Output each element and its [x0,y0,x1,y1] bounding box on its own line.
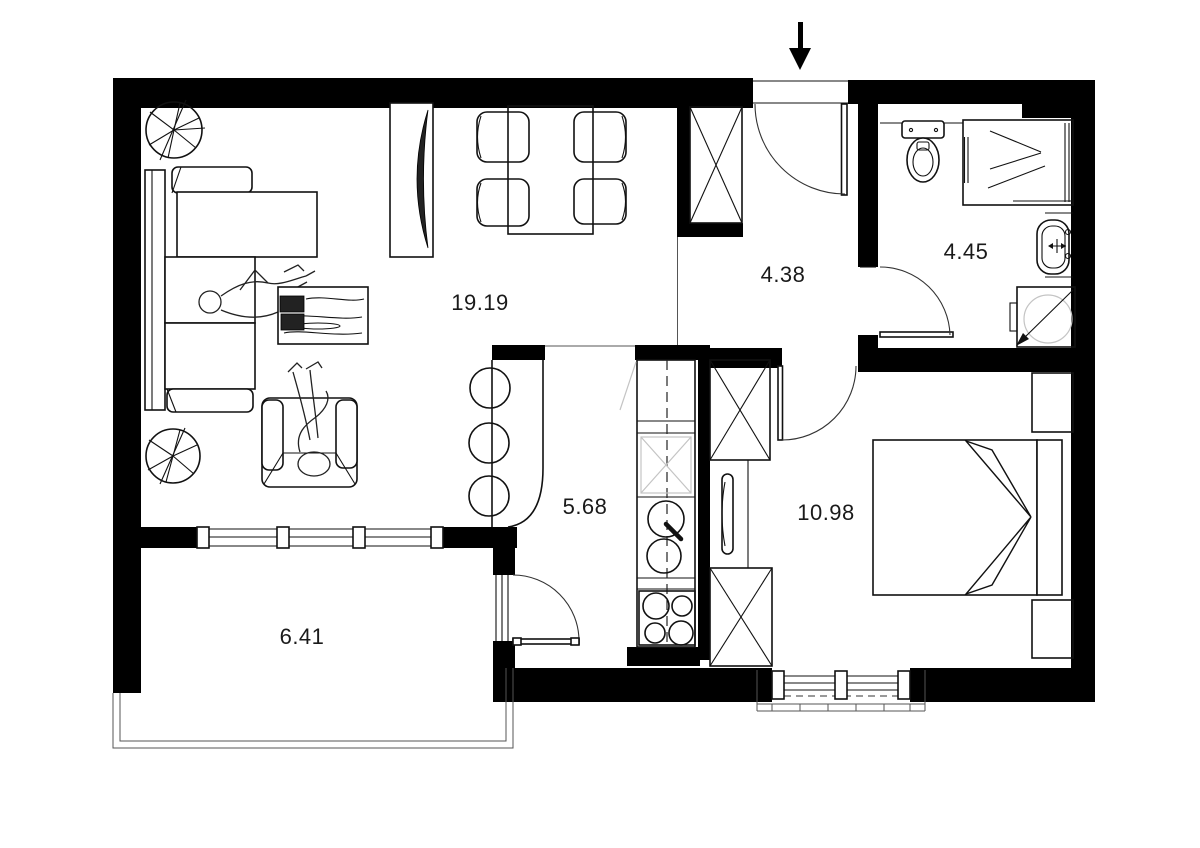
shower-chevron-icon [988,131,1045,188]
room-label-living-room: 19.19 [451,290,509,316]
room-label-bathroom: 4.45 [944,239,989,265]
bed [873,440,1062,595]
plant [146,428,200,484]
bedroom-wardrobe [710,360,772,666]
room-label-hallway: 4.38 [761,262,806,288]
entrance-door [753,81,848,195]
bedroom-window [757,669,925,711]
dishwasher [641,437,691,493]
toilet [880,121,963,182]
room-label-kitchen: 5.68 [563,494,608,520]
bathroom-door [860,267,953,337]
washing-machine [1010,287,1075,347]
tv-unit [390,103,433,257]
balcony-door [496,575,579,645]
bathroom-sink [1037,213,1073,277]
walls [113,78,1095,702]
bar-counter [492,360,543,527]
shower [963,120,1073,205]
kitchen-sink [647,501,684,573]
entrance-arrow [789,22,811,70]
room-label-balcony: 6.41 [280,624,325,650]
dining-chair [477,112,626,226]
room-boundary-lines [545,237,678,346]
bar-stool [469,368,510,516]
balcony-railing [113,668,513,748]
armchair [262,398,357,487]
floor-plan-drawing [0,0,1200,848]
bedroom-door [778,366,856,440]
floor-plan: 19.19 4.38 4.45 5.68 10.98 6.41 [0,0,1200,848]
living-room-window [197,527,443,548]
room-label-bedroom: 10.98 [797,500,855,526]
hallway-wardrobe [690,107,742,223]
coffee-table [278,287,368,344]
plant [146,100,205,160]
mirror [722,474,733,554]
